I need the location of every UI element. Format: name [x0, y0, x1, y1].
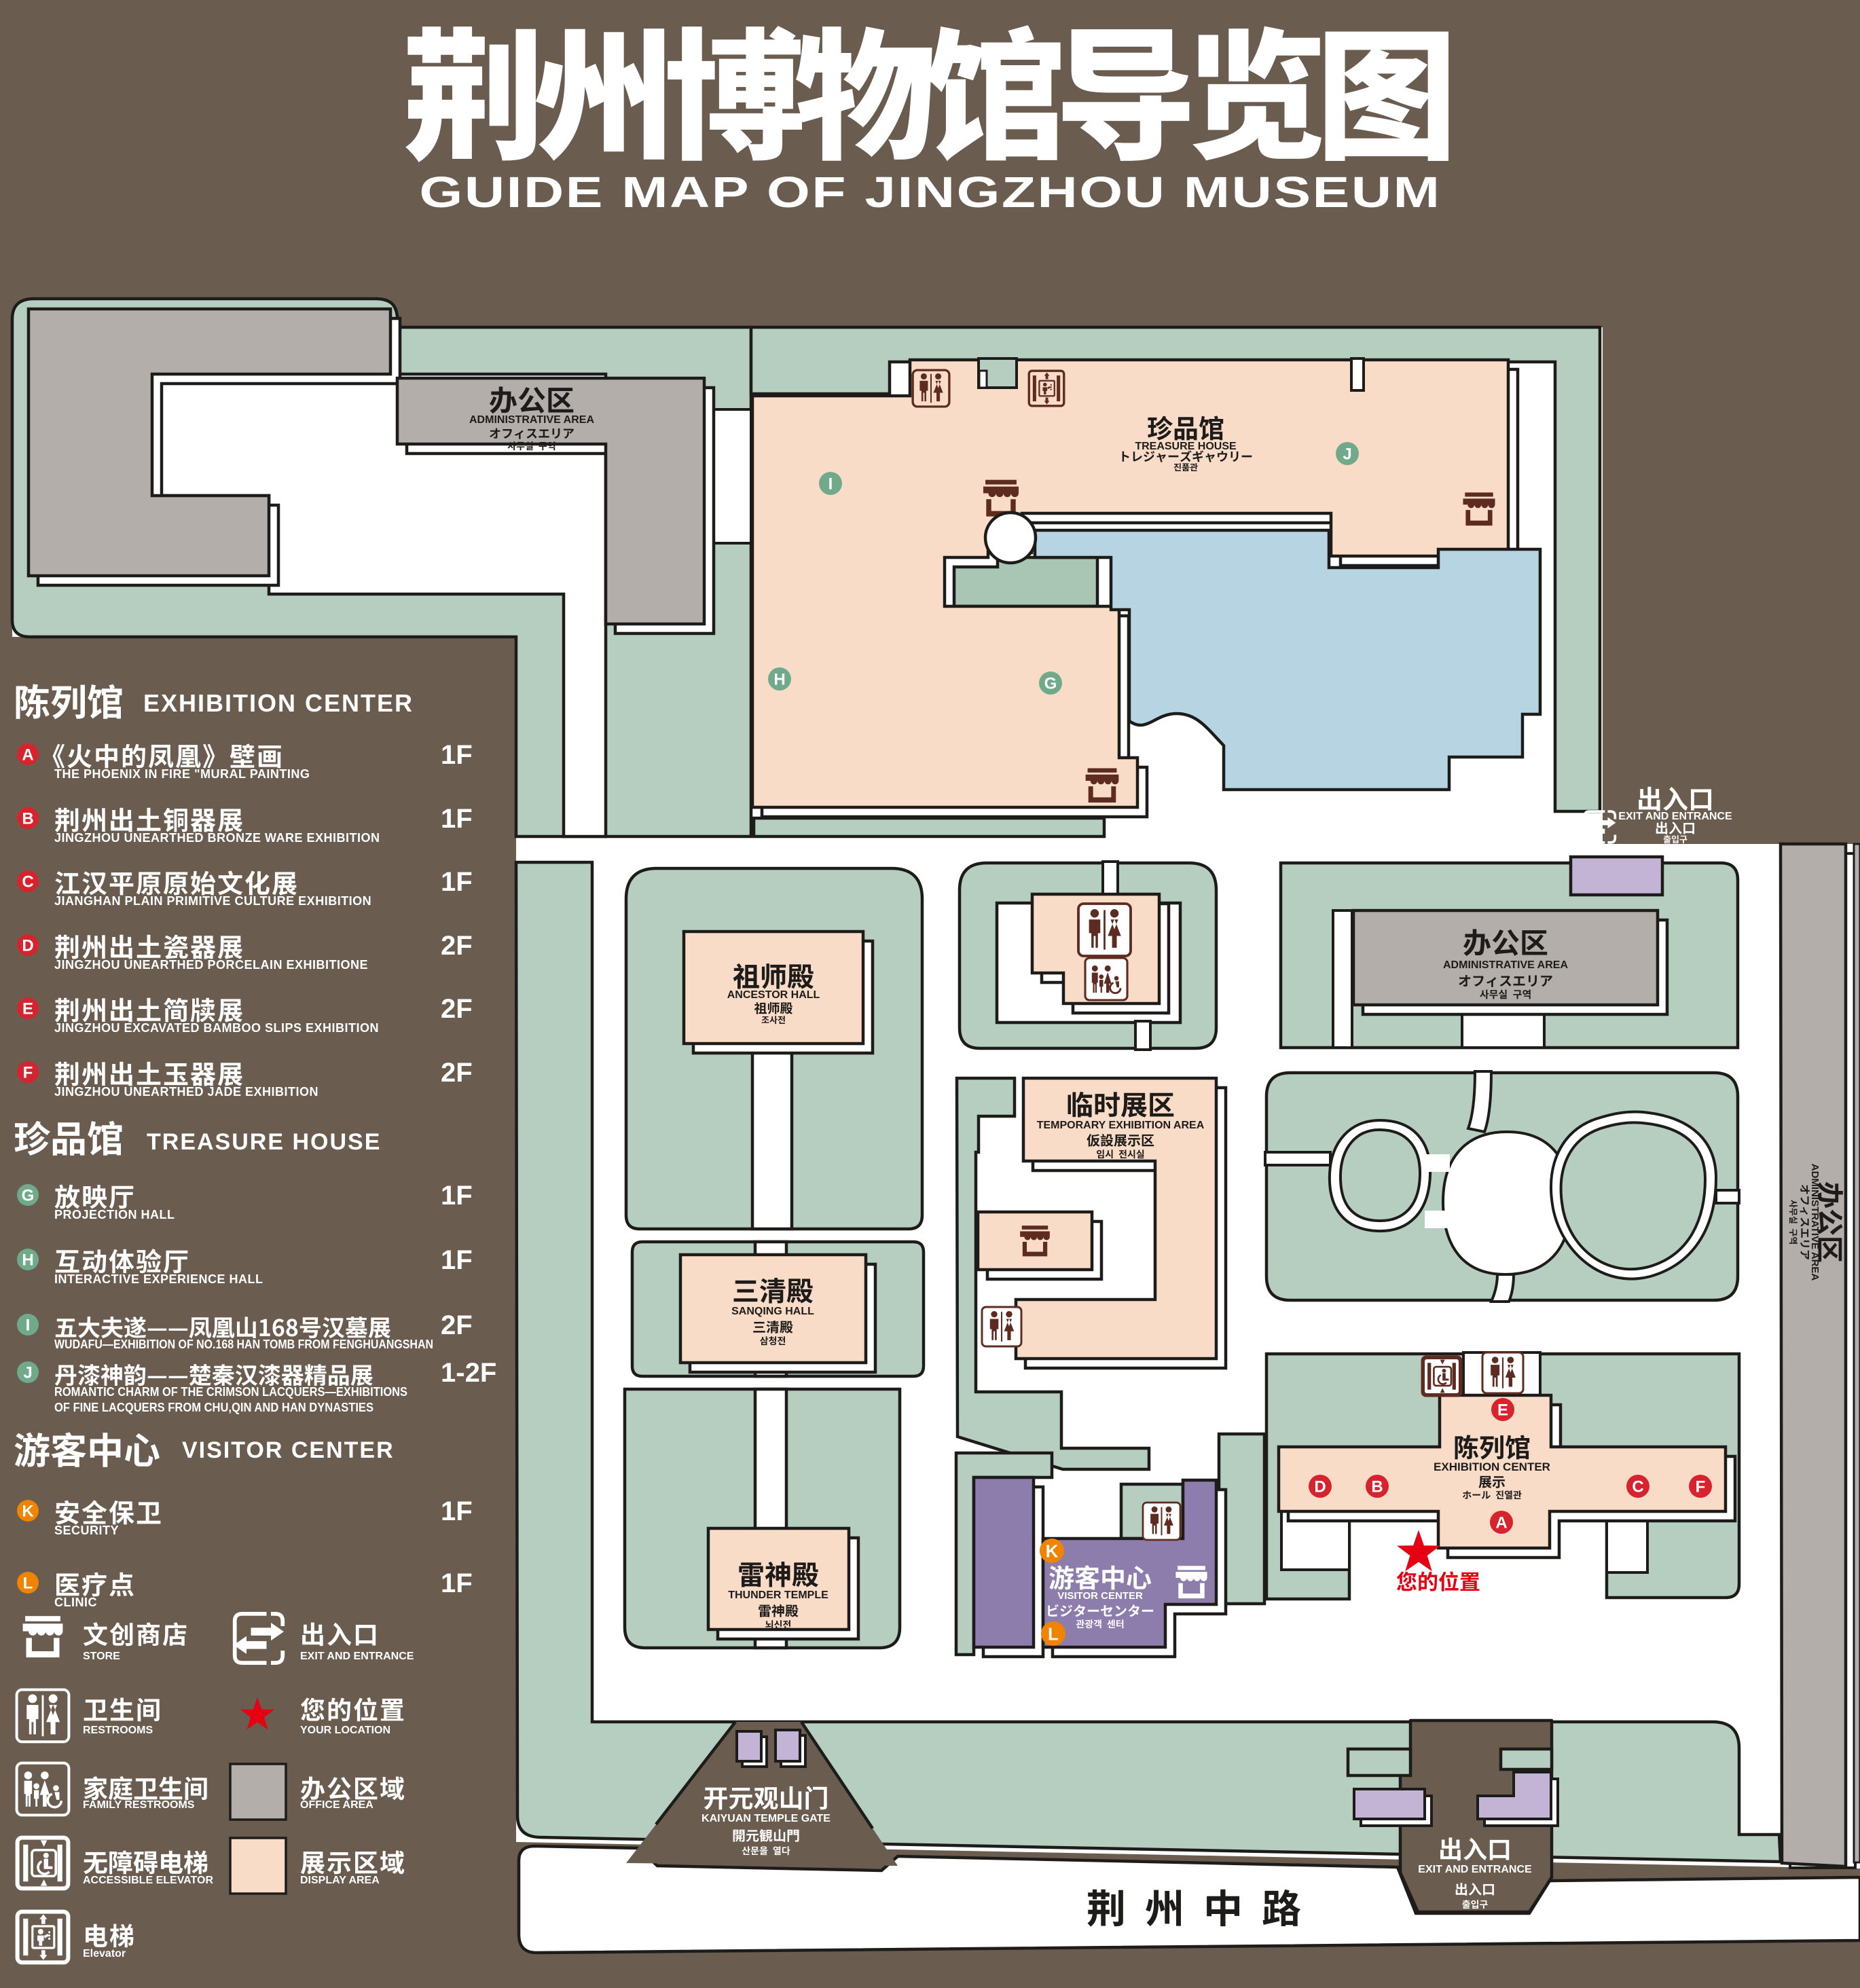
svg-text:H: H — [773, 671, 785, 689]
svg-text:1F: 1F — [441, 804, 473, 834]
svg-text:D: D — [1314, 1478, 1326, 1496]
svg-text:B: B — [1371, 1478, 1383, 1496]
svg-text:1F: 1F — [441, 1496, 473, 1526]
svg-text:2F: 2F — [441, 1310, 473, 1340]
svg-text:ADMINISTRATIVE AREA: ADMINISTRATIVE AREA — [469, 414, 594, 426]
svg-text:RESTROOMS: RESTROOMS — [83, 1725, 153, 1736]
svg-text:PROJECTION HALL: PROJECTION HALL — [54, 1208, 175, 1221]
svg-text:C: C — [22, 873, 33, 891]
svg-text:E: E — [22, 1000, 33, 1018]
svg-text:TREASURE HOUSE: TREASURE HOUSE — [1135, 441, 1237, 452]
svg-text:B: B — [22, 810, 33, 828]
svg-text:TREASURE HOUSE: TREASURE HOUSE — [147, 1129, 381, 1155]
svg-text:ADMINISTRATIVE AREA: ADMINISTRATIVE AREA — [1809, 1164, 1821, 1281]
svg-text:F: F — [1696, 1478, 1706, 1496]
svg-text:F: F — [23, 1064, 33, 1082]
svg-text:Elevator: Elevator — [83, 1948, 126, 1959]
svg-text:EXHIBITION CENTER: EXHIBITION CENTER — [1434, 1460, 1550, 1473]
svg-text:1F: 1F — [441, 740, 473, 770]
svg-text:ADMINISTRATIVE AREA: ADMINISTRATIVE AREA — [1443, 959, 1568, 971]
svg-text:SANQING HALL: SANQING HALL — [731, 1306, 814, 1317]
svg-text:ROMANTIC CHARM OF THE CRIMSON: ROMANTIC CHARM OF THE CRIMSON LACQUERS—E… — [54, 1384, 407, 1399]
svg-text:C: C — [1632, 1478, 1643, 1496]
svg-text:1-2F: 1-2F — [441, 1358, 496, 1388]
svg-text:1F: 1F — [441, 1568, 473, 1598]
svg-text:1F: 1F — [441, 1245, 473, 1275]
svg-text:OF FINE LACQUERS FROM CHU,QIN: OF FINE LACQUERS FROM CHU,QIN AND HAN DY… — [54, 1400, 373, 1414]
svg-text:G: G — [22, 1187, 35, 1205]
svg-text:VISITOR CENTER: VISITOR CENTER — [182, 1437, 395, 1463]
svg-text:2F: 2F — [441, 931, 473, 961]
svg-text:L: L — [23, 1575, 33, 1593]
svg-text:1F: 1F — [441, 1181, 473, 1211]
svg-text:D: D — [22, 937, 33, 955]
svg-text:H: H — [22, 1251, 33, 1270]
svg-text:SECURITY: SECURITY — [54, 1524, 119, 1537]
svg-text:I: I — [26, 1317, 31, 1335]
svg-text:ANCESTOR HALL: ANCESTOR HALL — [727, 989, 820, 1001]
svg-text:CLINIC: CLINIC — [54, 1596, 97, 1609]
svg-text:2F: 2F — [441, 994, 473, 1024]
svg-text:K: K — [22, 1503, 34, 1521]
svg-text:THUNDER TEMPLE: THUNDER TEMPLE — [728, 1589, 828, 1601]
svg-text:JINGZHOU UNEARTHED BRONZE WARE: JINGZHOU UNEARTHED BRONZE WARE EXHIBITIO… — [54, 831, 380, 845]
svg-text:GUIDE MAP OF JINGZHOU MUSEUM: GUIDE MAP OF JINGZHOU MUSEUM — [420, 168, 1442, 217]
svg-text:ACCESSIBLE ELEVATOR: ACCESSIBLE ELEVATOR — [83, 1875, 213, 1886]
svg-text:A: A — [1495, 1514, 1507, 1532]
svg-text:E: E — [1497, 1401, 1508, 1420]
svg-text:JINGZHOU UNEARTHED JADE EXHIBI: JINGZHOU UNEARTHED JADE EXHIBITION — [54, 1085, 318, 1099]
svg-text:EXIT AND ENTRANCE: EXIT AND ENTRANCE — [1418, 1864, 1532, 1875]
svg-text:L: L — [1048, 1623, 1059, 1644]
svg-text:FAMILY RESTROOMS: FAMILY RESTROOMS — [83, 1799, 195, 1811]
svg-text:EXIT AND ENTRANCE: EXIT AND ENTRANCE — [300, 1651, 414, 1662]
svg-text:VISITOR CENTER: VISITOR CENTER — [1057, 1590, 1143, 1602]
svg-text:2F: 2F — [441, 1058, 473, 1088]
svg-text:J: J — [1343, 445, 1351, 464]
svg-text:JIANGHAN PLAIN PRIMITIVE CULTU: JIANGHAN PLAIN PRIMITIVE CULTURE EXHIBIT… — [54, 894, 371, 908]
svg-text:I: I — [828, 475, 833, 494]
svg-text:TEMPORARY EXHIBITION AREA: TEMPORARY EXHIBITION AREA — [1037, 1120, 1205, 1131]
svg-text:J: J — [23, 1364, 32, 1382]
svg-text:OFFICE AREA: OFFICE AREA — [300, 1799, 373, 1811]
svg-text:EXIT AND ENTRANCE: EXIT AND ENTRANCE — [1618, 811, 1732, 822]
svg-text:A: A — [22, 746, 33, 765]
svg-text:G: G — [1044, 675, 1057, 693]
svg-text:INTERACTIVE EXPERIENCE HALL: INTERACTIVE EXPERIENCE HALL — [54, 1272, 263, 1286]
svg-text:JINGZHOU EXCAVATED BAMBOO SLIP: JINGZHOU EXCAVATED BAMBOO SLIPS EXHIBITI… — [54, 1021, 379, 1035]
svg-text:WUDAFU—EXHIBITION OF NO.168 HA: WUDAFU—EXHIBITION OF NO.168 HAN TOMB FRO… — [54, 1337, 433, 1351]
svg-text:KAIYUAN TEMPLE GATE: KAIYUAN TEMPLE GATE — [701, 1813, 831, 1824]
svg-text:K: K — [1046, 1541, 1059, 1561]
svg-text:1F: 1F — [441, 867, 473, 897]
svg-text:YOUR LOCATION: YOUR LOCATION — [300, 1725, 390, 1736]
svg-text:DISPLAY AREA: DISPLAY AREA — [300, 1875, 380, 1886]
svg-text:JINGZHOU UNEARTHED PORCELAIN E: JINGZHOU UNEARTHED PORCELAIN EXHIBITIONE — [54, 958, 368, 972]
svg-text:STORE: STORE — [83, 1651, 120, 1662]
svg-text:THE PHOENIX IN FIRE "MURAL PAI: THE PHOENIX IN FIRE "MURAL PAINTING — [54, 767, 310, 781]
svg-text:EXHIBITION CENTER: EXHIBITION CENTER — [143, 689, 414, 717]
